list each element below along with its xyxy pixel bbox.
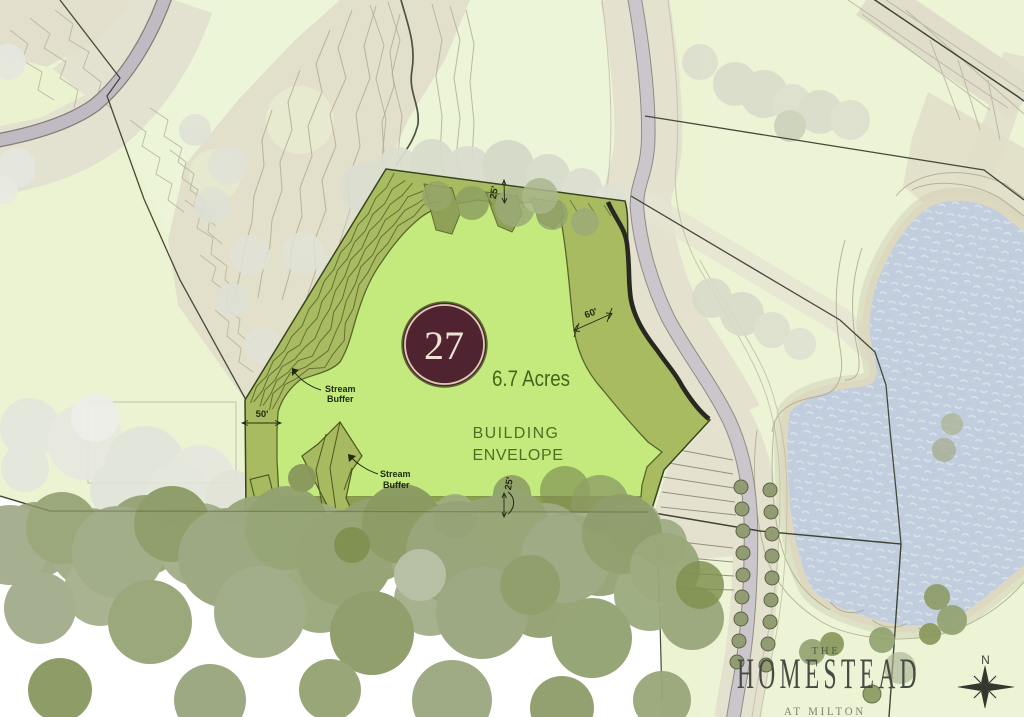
svg-text:Stream: Stream: [325, 384, 356, 394]
svg-text:N: N: [981, 653, 991, 667]
svg-text:6.7 Acres: 6.7 Acres: [492, 366, 570, 391]
svg-text:25': 25': [503, 476, 516, 491]
svg-text:ENVELOPE: ENVELOPE: [472, 447, 563, 464]
svg-text:50': 50': [256, 409, 269, 420]
svg-text:25': 25': [488, 185, 501, 200]
svg-text:Buffer: Buffer: [383, 480, 410, 490]
svg-text:AT MILTON: AT MILTON: [784, 706, 866, 717]
svg-text:Buffer: Buffer: [327, 394, 354, 404]
svg-text:HOMESTEAD: HOMESTEAD: [737, 651, 921, 698]
svg-text:27: 27: [424, 323, 464, 368]
svg-text:Stream: Stream: [380, 469, 411, 479]
svg-text:BUILDING: BUILDING: [473, 425, 560, 442]
